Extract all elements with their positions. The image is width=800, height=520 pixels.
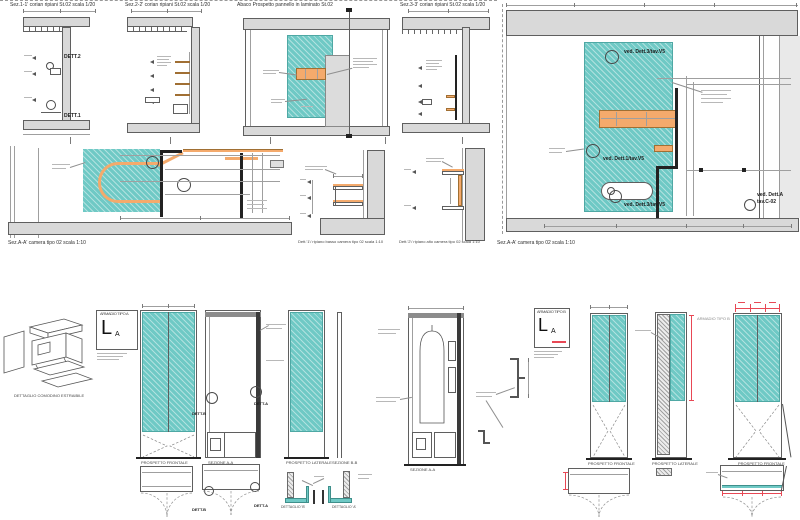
drawing-line <box>46 100 56 110</box>
drawing-line <box>644 3 645 7</box>
drawing-line <box>455 55 457 120</box>
drawing-line <box>353 67 369 68</box>
section-3-3-title: Sez.3-3' corian ripiani St.02 scala 1/20 <box>400 3 485 9</box>
wardrobe-a-side-caption: PROSPETTO LATERALE <box>286 461 332 465</box>
drawing-line <box>203 491 259 515</box>
plan-door-arcs <box>140 492 193 518</box>
legend-b-symbol-sub: A <box>551 328 556 335</box>
drawing-line <box>387 30 388 126</box>
drawing-line <box>510 396 519 398</box>
drawing-line <box>343 471 350 498</box>
shelf-section <box>599 110 678 128</box>
drawing-line <box>136 457 201 459</box>
hanging-garment <box>412 323 452 428</box>
drawing-line <box>160 150 163 217</box>
drawing-line <box>23 134 90 135</box>
comodino-caption: DETTAGLIO COMODINO ESTRAIBILE <box>14 394 84 398</box>
drawing-line <box>563 472 568 473</box>
drawing-line <box>593 405 625 457</box>
drawing-line <box>657 314 670 455</box>
drawing-line <box>358 474 372 475</box>
drawing-line <box>240 153 243 218</box>
drawing-line <box>426 60 442 61</box>
drawing-line <box>446 95 455 98</box>
drawing-line <box>402 17 490 30</box>
drawing-line <box>592 404 626 458</box>
dettaglio-b-caption: DETTAGLIO 'B' <box>281 506 305 510</box>
drawing-line <box>549 152 562 153</box>
drawing-line <box>434 432 456 458</box>
drawing-line <box>175 61 190 63</box>
drawing-line <box>23 17 90 27</box>
drawing-line <box>757 315 758 402</box>
drawing-line <box>743 224 744 228</box>
drawing-line <box>143 435 167 457</box>
drawing-line <box>4 319 92 387</box>
drawing-line <box>549 148 565 149</box>
drawing-line <box>517 377 525 379</box>
drawing-line <box>426 69 437 70</box>
drawing-line <box>328 486 331 503</box>
wardrobe-b-side-plan <box>656 468 672 476</box>
comodino-exploded-iso: DETTAGLIO COMODINO ESTRAIBILE <box>2 300 97 400</box>
drawing-line <box>256 312 260 458</box>
profile-details <box>470 350 540 460</box>
drawing-line <box>462 27 470 130</box>
drawing-line <box>95 9 96 13</box>
drawing-line <box>307 196 311 200</box>
drawing-line <box>142 472 191 473</box>
drawing-line <box>448 367 456 393</box>
drawing-line <box>750 304 751 312</box>
drawing-line <box>203 491 231 515</box>
drawing-line <box>41 112 61 113</box>
drawing-line <box>245 30 246 126</box>
drawing-line <box>204 470 258 471</box>
drawing-line <box>328 498 352 503</box>
drawing-line <box>404 205 411 206</box>
drawing-line <box>313 478 324 484</box>
drawing-line <box>402 30 460 34</box>
wardrobe-b-section-caption: SEZIONE A-A <box>410 468 435 472</box>
drawing-line <box>462 148 463 241</box>
detail-callout-a <box>744 199 756 211</box>
drawing-line <box>528 360 529 396</box>
drawing-line <box>312 180 313 214</box>
drawing-line <box>335 186 336 206</box>
drawing-line <box>736 405 779 457</box>
drawing-line <box>496 387 515 395</box>
drawing-line <box>566 148 584 151</box>
shelf-bar <box>296 68 326 80</box>
drawing-line <box>728 458 786 460</box>
drawing-line <box>534 357 554 358</box>
drawing-line <box>779 36 800 218</box>
drawing-line <box>478 430 485 432</box>
drawing-line <box>320 218 385 235</box>
drawing-line <box>675 88 678 169</box>
drawing-line <box>528 394 529 398</box>
drawing-line <box>32 56 36 60</box>
drawing-line <box>408 306 409 310</box>
drawing-line <box>349 10 350 138</box>
drawing-line <box>502 4 503 234</box>
plan-aa-caption: Sez.A-A' camera tipo 02 scala 1:10 <box>8 241 86 247</box>
legend-a-symbol: L <box>101 318 112 338</box>
drawing-line <box>157 56 171 57</box>
drawing-line <box>609 315 610 402</box>
drawing-line <box>167 493 192 517</box>
drawing-line <box>656 166 659 218</box>
drawing-line <box>404 464 466 466</box>
drawing-line <box>150 88 154 92</box>
wardrobe-a-sectionbb-caption: SEZIONE B-B <box>332 461 357 465</box>
drawing-line <box>752 497 781 517</box>
drawing-line <box>426 158 444 159</box>
drawing-line <box>483 442 490 444</box>
drawing-line <box>722 471 782 472</box>
drawing-line <box>52 164 70 165</box>
detail-1-caption: Dett.'1'/ ripiano basso camera tipo 02 s… <box>298 240 395 244</box>
detail-callout-3-top <box>605 50 619 64</box>
drawing-line <box>231 491 259 515</box>
callout-label-dett3-top: ved. Dett.3/tav.V5 <box>624 50 665 55</box>
drawing-line <box>544 224 545 228</box>
floor-slab <box>506 218 799 232</box>
drawing-line <box>738 302 745 303</box>
drawing-line <box>175 83 190 85</box>
drawing-line <box>143 435 194 457</box>
drawing-line <box>656 166 678 169</box>
drawing-line <box>157 62 171 63</box>
drawing-line <box>120 218 290 219</box>
drawing-line <box>422 99 432 105</box>
drawing-line <box>699 168 703 172</box>
drawing-line <box>362 174 363 178</box>
drawing-line <box>534 351 562 352</box>
drawing-line <box>616 112 617 126</box>
drawing-line <box>23 9 24 13</box>
drawing-line <box>686 84 791 85</box>
drawing-line <box>142 304 143 308</box>
drawing-line <box>150 60 154 64</box>
drawing-line <box>759 405 779 457</box>
drawing-line <box>408 9 409 13</box>
drawing-line <box>97 356 123 357</box>
drawing-line <box>450 178 451 204</box>
drawing-line <box>599 495 629 517</box>
callout-label-tavC02: tav.C-02 <box>757 200 776 205</box>
drawing-line <box>289 216 290 220</box>
drawing-line <box>300 195 306 196</box>
drawing-line <box>528 358 529 362</box>
drawing-line <box>353 64 377 65</box>
drawing-line <box>353 58 377 59</box>
wardrobe-b-plan1 <box>568 468 630 494</box>
abaco-title: Abaco Prospetto pannello in laminato St.… <box>237 3 333 9</box>
drawing-line <box>205 312 261 317</box>
dett-b-label: DETT.B <box>192 412 206 416</box>
drawing-line <box>593 405 608 457</box>
section-2-2-title: Sez.2-2' corian ripiani St.02 scala 1/20 <box>125 3 210 9</box>
drawing-line <box>191 27 200 133</box>
drawing-line <box>412 206 416 210</box>
section-3-3: Sez.3-3' corian ripiani St.02 scala 1/20 <box>398 0 498 140</box>
drawing-line <box>404 169 411 170</box>
drawing-line <box>376 397 400 398</box>
door-swing-lines <box>142 434 195 458</box>
drawing-line <box>263 70 279 71</box>
drawing-line <box>305 166 327 167</box>
drawing-line <box>782 404 791 457</box>
drawing-line <box>723 497 752 517</box>
dett-b-callout <box>206 392 218 404</box>
dettaglio-a-caption: DETTAGLIO 'A' <box>332 506 356 510</box>
drawing-line <box>24 97 32 98</box>
drawing-line <box>263 73 276 74</box>
dett1-label: DETT.1 <box>64 114 81 119</box>
section-aa-caption: Sez.A-A' camera tipo 02 scala 1:10 <box>497 241 575 247</box>
drawing-line <box>141 493 167 517</box>
drawing-line <box>402 123 490 133</box>
drawing-line <box>97 353 127 354</box>
drawing-line <box>765 304 766 312</box>
drawing-line <box>145 97 160 103</box>
drawing-line <box>609 305 610 309</box>
drawing-line <box>157 65 167 66</box>
drawing-line <box>446 108 455 111</box>
drawing-line <box>317 69 318 79</box>
drawing-line <box>307 180 311 184</box>
plan-wall <box>8 222 292 235</box>
drawing-line <box>175 94 190 96</box>
ceiling-slab <box>506 10 798 36</box>
detail-2-ripiano-alto: Dett.'2'/ ripiano alto camera tipo 02 sc… <box>398 138 498 250</box>
drawing-line <box>420 325 444 423</box>
drawing-line <box>97 359 119 360</box>
drawing-line <box>570 474 628 475</box>
drawing-line <box>305 169 323 170</box>
drawing-line <box>635 330 651 331</box>
section-aa-large: ved. Dett.3/tav.V5 ved. Dett.1/tav.V5 ve… <box>496 0 800 250</box>
side-panel <box>325 55 350 127</box>
drawing-line <box>131 11 201 12</box>
drawing-line <box>266 360 284 361</box>
drawing-line <box>506 5 798 6</box>
drawing-line <box>706 472 718 473</box>
drawing-line <box>313 490 315 504</box>
drawing-line <box>305 69 306 79</box>
drawing-line <box>412 170 416 174</box>
callout-label-dett3-low: ved. Dett.3/tav.V5 <box>624 203 665 208</box>
drawing-line <box>183 149 283 152</box>
drawing-line <box>173 104 188 114</box>
drawing-line <box>657 78 791 79</box>
drawing-line <box>574 3 575 7</box>
drawing-line <box>168 304 169 308</box>
drawing-line <box>376 401 396 402</box>
drawing-line <box>486 400 504 428</box>
drawing-line <box>120 216 121 220</box>
drawing-line <box>333 202 363 206</box>
drawing-line <box>24 71 32 72</box>
drawing-line <box>426 66 442 67</box>
drawing-line <box>458 175 462 206</box>
drawing-line <box>247 204 264 205</box>
drawing-line <box>722 493 782 494</box>
drawing-line <box>170 435 194 457</box>
drawing-line <box>66 333 82 363</box>
drawing-line <box>337 312 342 313</box>
drawing-line <box>62 27 71 122</box>
wardrobe-a-plan <box>140 466 193 492</box>
drawing-line <box>418 112 422 116</box>
drawing-line <box>247 208 267 209</box>
drawing-line <box>333 186 363 190</box>
drawing-line <box>476 392 496 393</box>
drawing-line <box>301 106 313 107</box>
drawing-line <box>32 98 36 102</box>
drawing-line <box>736 405 756 457</box>
drawing-line <box>418 66 422 70</box>
drawing-line <box>506 36 507 218</box>
drawing-line <box>266 328 282 329</box>
callout-label-dettA: ved. Dett.A <box>757 193 783 198</box>
drawing-line <box>127 123 200 133</box>
drawing-line <box>202 490 260 516</box>
armadio-tipo-label: ARMADIO TIPO B <box>697 317 730 321</box>
drawing-line <box>408 313 464 318</box>
drawing-line <box>457 313 461 465</box>
drawing-line <box>307 214 311 218</box>
drawing-line <box>791 224 792 228</box>
drawing-line <box>142 486 191 487</box>
drawing-line <box>300 179 306 180</box>
drawing-line <box>160 150 182 153</box>
drawing-line <box>175 72 190 74</box>
drawing-line <box>127 31 187 32</box>
drawing-line <box>418 84 422 88</box>
drawing-line <box>382 30 383 126</box>
drawing-line <box>314 476 324 477</box>
drawing-line <box>568 494 630 518</box>
drawing-line <box>200 216 201 220</box>
drawing-line <box>52 168 66 169</box>
drawing-line <box>416 438 426 450</box>
drawing-line <box>201 9 202 13</box>
plan-callout-1 <box>146 156 159 169</box>
drawing-line <box>701 94 727 95</box>
drawing-line <box>284 457 329 459</box>
drawing-line <box>120 155 280 156</box>
drawing-line <box>465 148 485 241</box>
drawing-line <box>569 495 599 517</box>
legend-a-title: ARMADIO TIPO A <box>100 312 136 316</box>
drawing-line <box>534 354 558 355</box>
drawing-line <box>693 82 694 216</box>
drawing-line <box>141 493 192 517</box>
drawing-line <box>742 168 746 172</box>
drawing-line <box>165 194 250 195</box>
drawing-line <box>714 3 715 7</box>
drawing-line <box>306 486 309 503</box>
drawing-line <box>686 224 687 228</box>
drawing-line <box>271 102 282 103</box>
drawing-line <box>691 315 692 401</box>
drawing-line <box>426 161 441 162</box>
drawing-line <box>24 55 32 56</box>
drawing-line <box>689 400 694 401</box>
dett-a-callout <box>250 386 262 398</box>
drawing-line <box>616 224 617 228</box>
drawing-line <box>23 120 90 130</box>
drawing-line <box>378 329 400 330</box>
legend-armadio-a: ARMADIO TIPO A L A <box>96 310 140 362</box>
drawing-line <box>654 145 673 152</box>
drawing-line <box>194 304 195 308</box>
wardrobe-b-side-caption: PROSPETTO LATERALE <box>652 462 698 466</box>
drawing-line <box>488 9 489 13</box>
detail-callout-1 <box>586 144 600 158</box>
drawing-line <box>646 112 647 126</box>
drawing-line <box>271 99 285 100</box>
drawing-line <box>476 396 492 397</box>
drawing-line <box>759 36 760 218</box>
drawing-line <box>701 102 723 103</box>
drawing-line <box>722 485 782 488</box>
drawing-line <box>627 305 628 309</box>
drawing-line <box>290 312 323 432</box>
dett-a-label: DETT.A <box>254 402 268 406</box>
section-2-2: Sez.2-2' corian ripiani St.02 scala 1/20 <box>123 0 235 140</box>
drawing-line <box>168 312 169 432</box>
drawing-line <box>723 497 781 517</box>
callout-label-dett1: ved. Dett.1/tav.V5 <box>603 157 644 162</box>
drawing-line <box>408 308 464 309</box>
drawing-line <box>426 63 439 64</box>
drawing-line <box>346 8 352 12</box>
drawing-line <box>120 181 280 182</box>
drawing-line <box>127 17 193 27</box>
drawing-line <box>463 306 464 310</box>
drawing-line <box>722 496 782 518</box>
drawing-line <box>224 432 225 458</box>
detail-callout-3-low <box>609 190 622 203</box>
drawing-line <box>586 458 632 460</box>
drawing-line <box>131 9 132 13</box>
drawing-line <box>250 30 251 126</box>
drawing-line <box>689 315 694 316</box>
drawing-line <box>157 59 169 60</box>
drawing-line <box>300 213 306 214</box>
drawing-line <box>442 206 464 210</box>
wardrobe-b-set: PROSPETTO FRONTALE PROSPETTO LATERALE AR… <box>560 300 800 520</box>
drawing-line <box>337 312 338 458</box>
drawing-line <box>266 324 286 325</box>
drawing-line <box>590 305 591 309</box>
dett2-label: DETT.2 <box>64 55 81 60</box>
drawing-line <box>32 72 36 76</box>
wardrobe-b-front-caption: PROSPETTO FRONTALE <box>588 462 635 466</box>
detail-2-caption: Dett.'2'/ ripiano alto camera tipo 02 sc… <box>399 240 496 244</box>
drawing-line <box>442 161 453 168</box>
detail-1-ripiano-basso: Dett.'1'/ ripiano basso camera tipo 02 s… <box>297 138 397 250</box>
wardrobe-a-set: PROSPETTO FRONTALE DETT.B DETT.A SEZIONE… <box>136 300 381 520</box>
drawing-line <box>333 174 334 178</box>
drawing-line <box>333 176 363 177</box>
drawing-line <box>210 438 221 451</box>
wardrobe-a-front-caption: PROSPETTO FRONTALE <box>141 461 188 465</box>
